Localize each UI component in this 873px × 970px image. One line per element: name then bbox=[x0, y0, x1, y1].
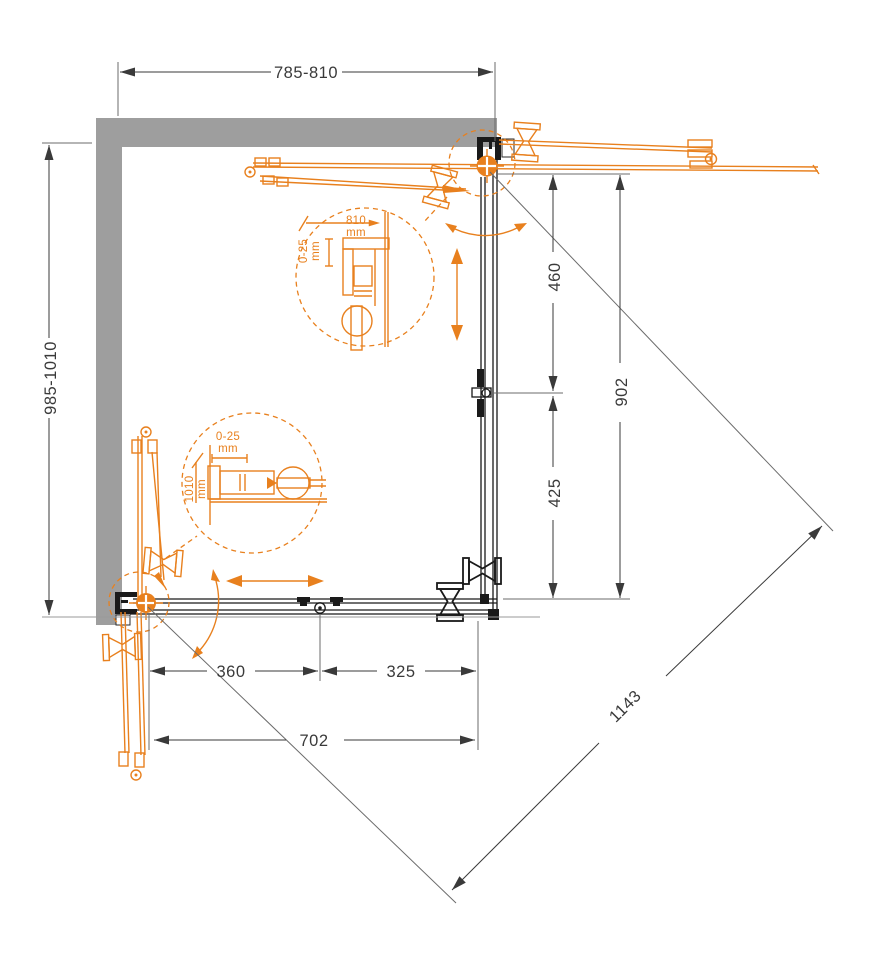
slide-arrow-vertical-icon bbox=[451, 248, 463, 341]
slide-arrow-horizontal-icon bbox=[226, 575, 324, 587]
shower-enclosure-installation-diagram: 810 mm 0-25 mm 0-25 mm 1010 mm bbox=[0, 0, 873, 970]
dim-height-left: 985-1010 bbox=[42, 145, 60, 615]
dim-diagonal-label: 1143 bbox=[606, 687, 645, 726]
swing-arc-icon bbox=[445, 223, 527, 236]
dim-bottom-opening-label: 702 bbox=[299, 732, 328, 750]
hinge-icon bbox=[437, 583, 463, 621]
detail-top-adjust-label: 0-25 bbox=[298, 239, 310, 263]
pivot-icon bbox=[129, 586, 163, 620]
dim-side-upper-label: 460 bbox=[546, 262, 564, 291]
dim-bottom-door-label: 325 bbox=[386, 663, 415, 681]
dim-side-lower: 425 bbox=[546, 396, 564, 598]
corner-foot bbox=[488, 609, 499, 620]
walls bbox=[96, 118, 497, 625]
dim-bottom-fixed-label: 360 bbox=[216, 663, 245, 681]
diagram-canvas: 810 mm 0-25 mm 0-25 mm 1010 mm bbox=[0, 0, 873, 970]
detail-top-width-unit: mm bbox=[346, 227, 366, 239]
door-end-fitting bbox=[132, 427, 157, 453]
dim-height-left-label: 985-1010 bbox=[42, 341, 60, 415]
dim-bottom-fixed: 360 bbox=[150, 663, 318, 681]
detail-side-adjust-unit: mm bbox=[218, 443, 238, 455]
dim-bottom-opening: 702 bbox=[154, 732, 475, 750]
dim-side-total-label: 902 bbox=[613, 377, 631, 406]
dim-side-total: 902 bbox=[613, 175, 631, 598]
dim-width-top: 785-810 bbox=[120, 64, 493, 82]
dim-side-upper: 460 bbox=[546, 175, 564, 391]
detail-side-adjust-label: 0-25 bbox=[216, 431, 240, 443]
roller-bracket-icon bbox=[472, 369, 491, 417]
detail-leader bbox=[166, 536, 197, 558]
detail-callout-side: 0-25 mm 1010 mm bbox=[166, 413, 327, 558]
detail-callout-top: 810 mm 0-25 mm bbox=[296, 197, 447, 350]
dim-diagonal: 1143 bbox=[449, 523, 825, 893]
dimensions: 785-810 985-1010 460 425 bbox=[42, 62, 833, 903]
detail-top-width-label: 810 bbox=[346, 215, 366, 227]
hinge-icon bbox=[463, 558, 501, 584]
bottom-wall-bracket bbox=[115, 592, 137, 625]
dim-width-top-label: 785-810 bbox=[274, 64, 338, 82]
corner-bracket bbox=[480, 594, 489, 604]
door-end-fitting bbox=[688, 140, 717, 168]
wall-left bbox=[96, 118, 122, 625]
detail-top-adjust-unit: mm bbox=[310, 241, 322, 261]
dim-side-lower-label: 425 bbox=[546, 478, 564, 507]
detail-side-height-unit: mm bbox=[196, 479, 208, 499]
door-end-fitting bbox=[119, 752, 144, 780]
wall-top bbox=[96, 118, 497, 147]
detail-side-height-label: 1010 bbox=[184, 476, 196, 503]
dim-bottom-door: 325 bbox=[322, 663, 476, 681]
motion-arrows bbox=[192, 223, 527, 659]
